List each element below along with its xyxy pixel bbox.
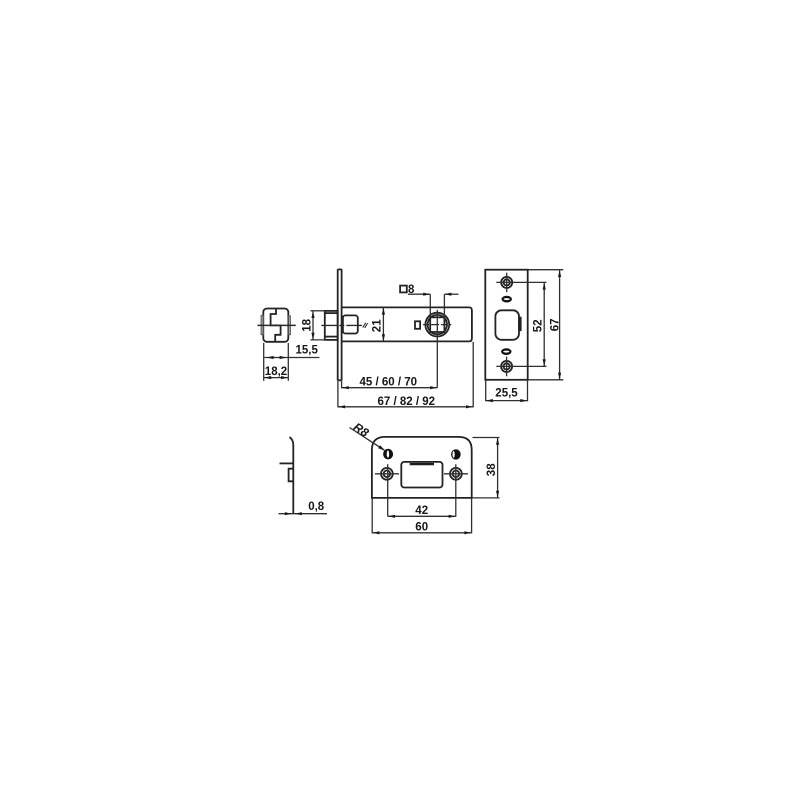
svg-text:60: 60 xyxy=(415,521,428,533)
svg-text:42: 42 xyxy=(415,505,428,517)
svg-text:18,2: 18,2 xyxy=(265,366,287,378)
svg-text:15,5: 15,5 xyxy=(296,344,319,356)
svg-text:25,5: 25,5 xyxy=(495,388,518,400)
svg-text:0,8: 0,8 xyxy=(308,501,325,513)
svg-text:18: 18 xyxy=(302,318,314,331)
svg-text:52: 52 xyxy=(533,319,545,332)
svg-text:67 / 82 / 92: 67 / 82 / 92 xyxy=(378,396,436,408)
svg-text:45 / 60 / 70: 45 / 60 / 70 xyxy=(360,377,418,389)
svg-text:21: 21 xyxy=(372,319,384,332)
svg-text:67: 67 xyxy=(550,319,562,332)
svg-text:38: 38 xyxy=(486,463,498,476)
